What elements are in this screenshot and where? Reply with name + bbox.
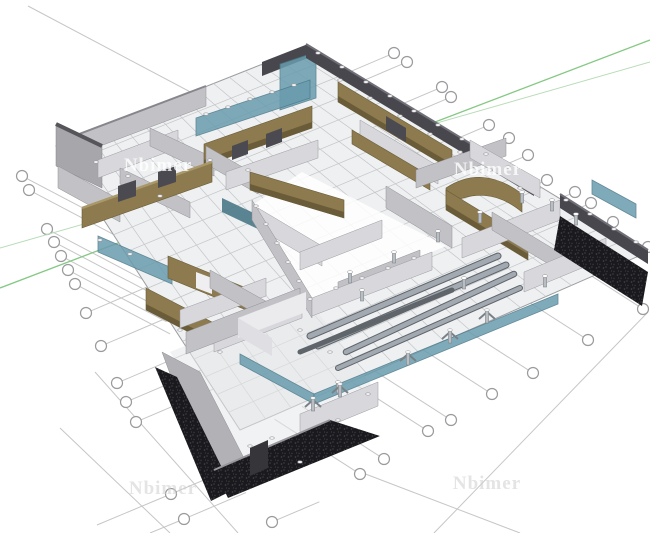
grid-axis-bubble xyxy=(542,175,553,186)
grid-axis-bubble xyxy=(355,469,366,480)
grid-axis-bubble xyxy=(638,304,649,315)
grid-axis-bubble xyxy=(49,237,60,248)
grid-axis-bubble xyxy=(42,224,53,235)
grid-axis-bubble xyxy=(131,417,142,428)
grid-axis-bubble xyxy=(423,426,434,437)
grid-axis-bubble xyxy=(487,389,498,400)
grid-axis-bubble xyxy=(586,198,597,209)
scene-canvas xyxy=(0,0,650,533)
grid-axis-bubble xyxy=(63,265,74,276)
grid-axis-bubble xyxy=(523,150,534,161)
grid-axis-bubble xyxy=(121,397,132,408)
grid-axis-bubble xyxy=(402,57,413,68)
grid-axis-bubble xyxy=(56,251,67,262)
grid-axis-bubble xyxy=(112,378,123,389)
grid-axis-bubble xyxy=(17,171,28,182)
grid-axis-bubble xyxy=(179,514,190,525)
grid-axis-bubble xyxy=(166,489,177,500)
glass-band xyxy=(592,180,636,218)
grid-axis-bubble xyxy=(81,308,92,319)
grid-axis-bubble xyxy=(379,454,390,465)
grid-axis-bubble xyxy=(96,341,107,352)
model-viewport[interactable]: NbimerNbimerNbimerNbimer xyxy=(0,0,650,533)
grid-axis-bubble xyxy=(389,48,400,59)
grid-axis-bubble xyxy=(484,120,495,131)
grid-axis-bubble xyxy=(570,187,581,198)
grid-axis-bubble xyxy=(583,335,594,346)
grid-axis-bubble xyxy=(24,185,35,196)
grid-axis-bubble xyxy=(528,368,539,379)
grid-axis-bubble xyxy=(70,279,81,290)
grid-axis-bubble xyxy=(446,92,457,103)
grid-axis-bubble xyxy=(267,517,278,528)
grid-axis-bubble xyxy=(437,82,448,93)
grid-axis-bubble xyxy=(446,415,457,426)
